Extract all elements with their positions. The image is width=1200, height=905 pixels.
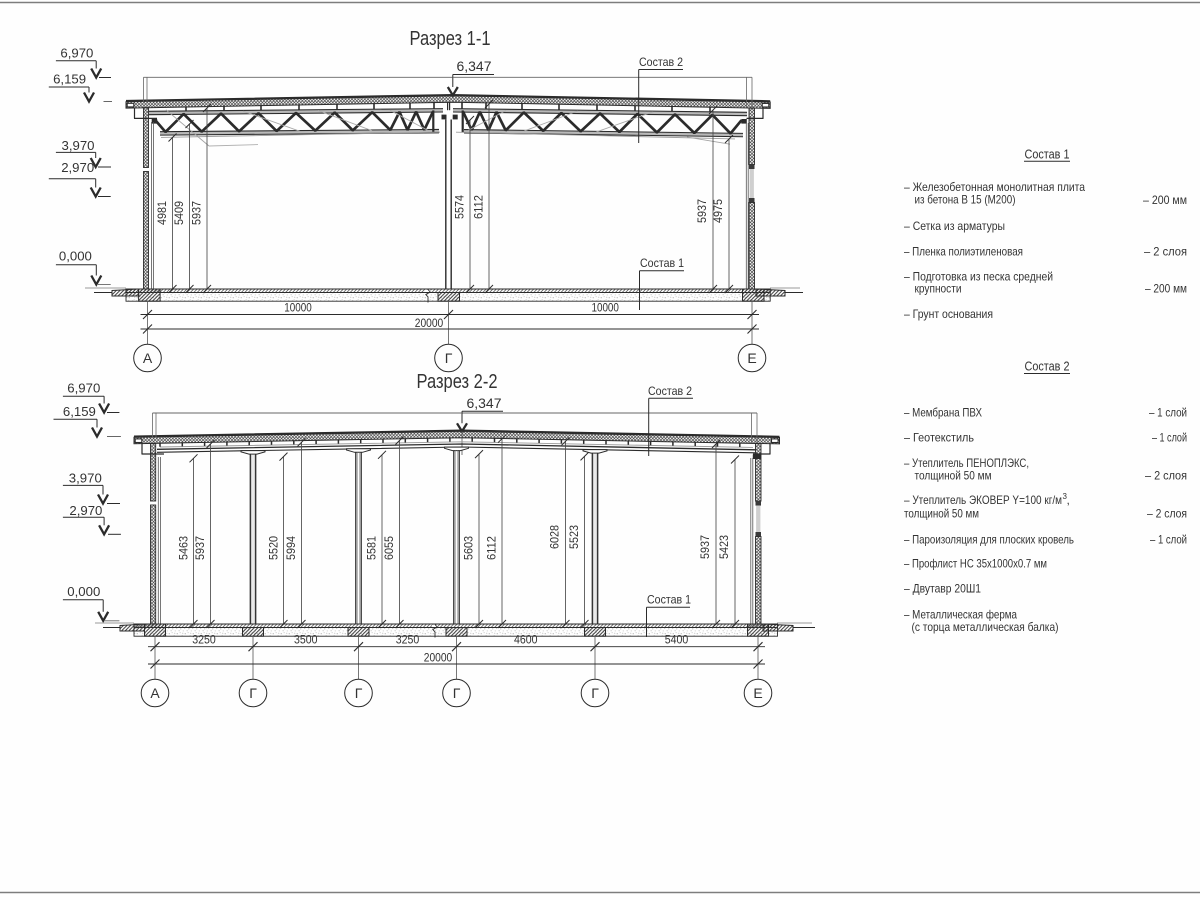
svg-text:– 2 слоя: – 2 слоя [1147,507,1187,521]
svg-text:Состав 1: Состав 1 [1025,148,1070,162]
svg-text:5994: 5994 [286,535,298,560]
svg-text:3250: 3250 [192,633,216,647]
svg-text:– Пароизоляция для плоских кро: – Пароизоляция для плоских кровель [904,533,1074,547]
svg-text:Состав 1: Состав 1 [647,593,691,607]
svg-text:Разрез 2-2: Разрез 2-2 [417,371,498,393]
svg-text:– 200 мм: – 200 мм [1143,193,1187,207]
svg-text:5523: 5523 [569,525,581,549]
svg-text:5937: 5937 [192,201,204,225]
svg-text:5463: 5463 [179,536,191,560]
svg-text:– Сетка из арматуры: – Сетка из арматуры [904,219,1005,233]
svg-text:6,347: 6,347 [467,395,502,411]
svg-text:толщиной 50 мм: толщиной 50 мм [915,468,992,482]
svg-text:6,970: 6,970 [60,45,93,60]
svg-text:4981: 4981 [157,201,169,225]
svg-text:– Грунт основания: – Грунт основания [904,307,993,321]
svg-text:6112: 6112 [474,195,486,219]
svg-text:5409: 5409 [174,201,186,225]
svg-text:0,000: 0,000 [59,249,92,264]
svg-text:А: А [143,350,153,366]
svg-text:Разрез 1-1: Разрез 1-1 [410,28,491,50]
svg-text:– Утеплитель ЭКОВЕР Y=100 кг/м: – Утеплитель ЭКОВЕР Y=100 кг/м [904,493,1062,507]
svg-text:,: , [1067,493,1070,507]
svg-text:6028: 6028 [550,525,562,549]
svg-text:– 2 слоя: – 2 слоя [1144,244,1187,258]
svg-text:6,970: 6,970 [67,381,100,396]
svg-text:5423: 5423 [719,535,731,559]
svg-text:5603: 5603 [464,536,476,560]
svg-text:3,970: 3,970 [62,138,95,153]
svg-text:А: А [150,685,160,701]
svg-text:из бетона В 15 (М200): из бетона В 15 (М200) [915,192,1016,206]
svg-text:5937: 5937 [195,536,207,560]
svg-text:Г: Г [591,685,599,701]
svg-text:5574: 5574 [455,194,467,219]
svg-text:3250: 3250 [396,633,420,647]
svg-text:4600: 4600 [514,633,538,647]
svg-text:Состав 2: Состав 2 [1025,360,1070,374]
svg-text:– 1 слой: – 1 слой [1149,406,1187,420]
svg-text:5400: 5400 [665,633,689,647]
svg-text:20000: 20000 [415,316,444,330]
svg-text:5520: 5520 [269,536,281,560]
svg-text:– Пленка полиэтиленовая: – Пленка полиэтиленовая [904,244,1023,258]
svg-text:Г: Г [355,685,363,701]
svg-text:5937: 5937 [697,199,709,223]
svg-text:толщиной 50 мм: толщиной 50 мм [904,507,979,521]
svg-text:Состав 2: Состав 2 [639,55,683,69]
svg-text:3,970: 3,970 [69,471,102,486]
svg-text:2,970: 2,970 [69,503,102,518]
svg-text:Состав 2: Состав 2 [648,384,692,398]
svg-text:Е: Е [747,350,756,366]
svg-text:– Геотекстиль: – Геотекстиль [904,431,974,445]
svg-text:10000: 10000 [591,301,619,315]
svg-text:2,970: 2,970 [61,160,94,175]
svg-text:Состав 1: Состав 1 [640,256,684,270]
svg-text:– Двутавр 20Ш1: – Двутавр 20Ш1 [904,582,981,596]
svg-text:крупности: крупности [915,282,962,296]
svg-text:(с торца металлическая балка): (с торца металлическая балка) [912,620,1059,634]
svg-text:– Профлист НС 35х1000х0.7 мм: – Профлист НС 35х1000х0.7 мм [904,557,1047,571]
svg-text:Г: Г [453,685,461,701]
svg-text:Е: Е [753,685,762,701]
svg-text:6,159: 6,159 [63,404,96,419]
svg-text:0,000: 0,000 [67,584,100,599]
svg-text:4975: 4975 [713,199,725,223]
svg-text:Г: Г [249,685,257,701]
svg-text:6,159: 6,159 [53,71,86,86]
svg-text:6112: 6112 [487,536,499,560]
svg-text:– 2 слоя: – 2 слоя [1145,468,1187,482]
svg-text:Г: Г [445,350,453,366]
svg-text:3500: 3500 [294,633,318,647]
svg-text:10000: 10000 [284,301,312,315]
svg-text:– 200 мм: – 200 мм [1145,282,1187,296]
svg-text:– 1 слой: – 1 слой [1152,431,1187,445]
svg-text:– 1 слой: – 1 слой [1150,533,1187,547]
svg-text:6055: 6055 [384,536,396,560]
svg-text:– Мембрана ПВХ: – Мембрана ПВХ [904,406,982,420]
svg-text:6,347: 6,347 [457,58,492,74]
svg-text:5581: 5581 [367,536,379,560]
svg-text:5937: 5937 [700,535,712,559]
svg-text:20000: 20000 [424,651,453,665]
